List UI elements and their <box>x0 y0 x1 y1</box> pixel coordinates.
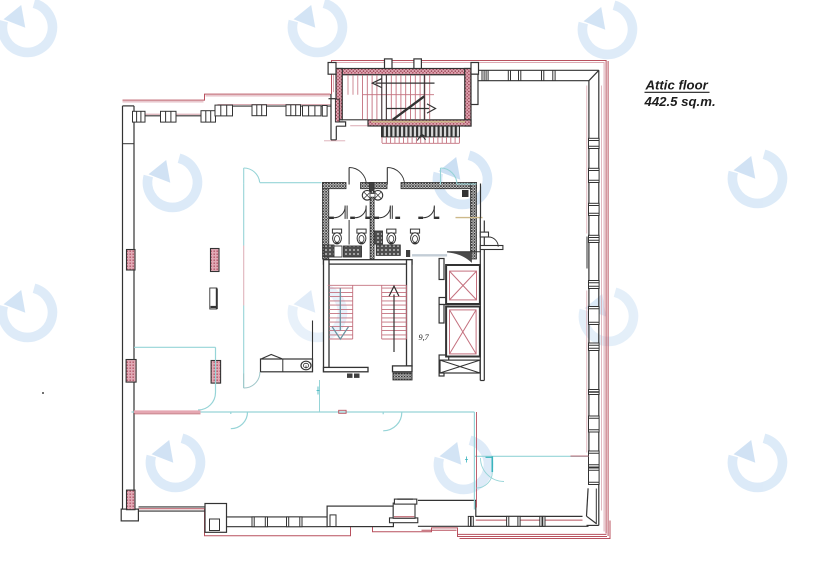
svg-text:9,7: 9,7 <box>419 333 430 342</box>
svg-text:442.5 sq.m.: 442.5 sq.m. <box>644 94 716 109</box>
svg-text:Attic floor: Attic floor <box>645 78 709 93</box>
